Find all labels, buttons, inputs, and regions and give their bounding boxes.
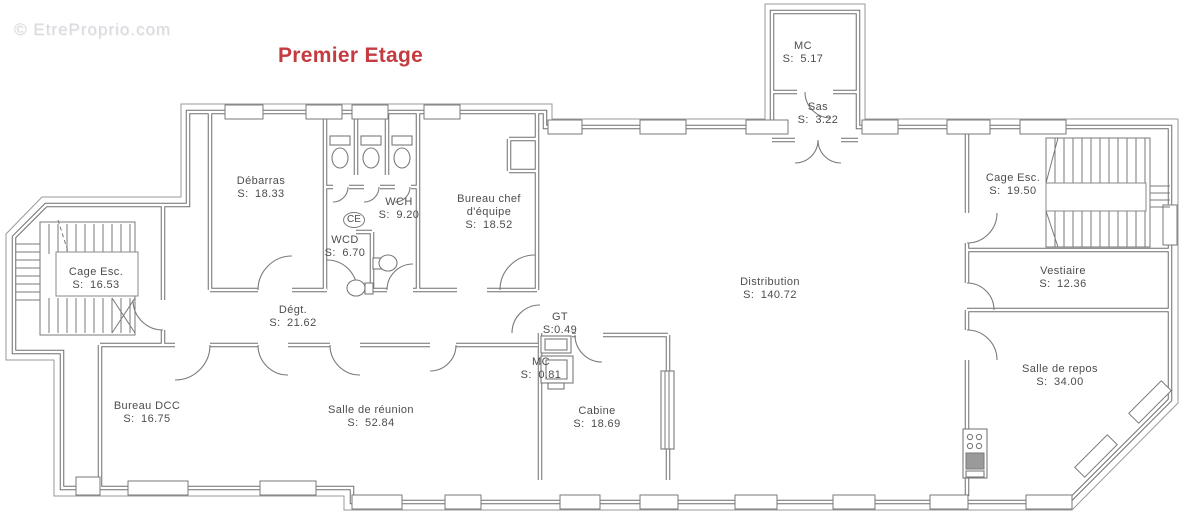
room-label-degagement: Dégt. S: 21.62 bbox=[269, 304, 316, 330]
room-area: S: 0.81 bbox=[521, 369, 562, 382]
room-label-bureau-chef: Bureau chef d'équipe S: 18.52 bbox=[446, 193, 532, 232]
room-area: S: 18.33 bbox=[237, 188, 284, 201]
room-area: S: 18.69 bbox=[573, 418, 620, 431]
room-name: Cage Esc. bbox=[69, 266, 123, 279]
room-name: Débarras bbox=[237, 175, 285, 188]
room-label-sas: Sas S: 3.22 bbox=[798, 101, 839, 127]
room-area: S: 19.50 bbox=[989, 185, 1036, 198]
room-label-salle-reunion: Salle de réunion S: 52.84 bbox=[328, 404, 414, 430]
room-label-distribution: Distribution S: 140.72 bbox=[740, 276, 800, 302]
room-area: S: 16.53 bbox=[72, 279, 119, 292]
room-label-vestiaire: Vestiaire S: 12.36 bbox=[1039, 265, 1086, 291]
room-label-bureau-dcc: Bureau DCC S: 16.75 bbox=[114, 400, 180, 426]
room-area: S: 5.17 bbox=[783, 53, 824, 66]
floor-plan-drawing bbox=[0, 0, 1200, 522]
room-area: S: 34.00 bbox=[1036, 376, 1083, 389]
room-area: S: 18.52 bbox=[465, 219, 512, 232]
room-label-salle-repos: Salle de repos S: 34.00 bbox=[1022, 363, 1098, 389]
room-name: Cage Esc. bbox=[986, 172, 1040, 185]
room-label-wcd: WCD S: 6.70 bbox=[325, 234, 366, 260]
room-label-gt: GT S:0.49 bbox=[543, 311, 577, 337]
room-name: Salle de repos bbox=[1022, 363, 1098, 376]
room-area: S: 3.22 bbox=[798, 114, 839, 127]
room-area: S: 52.84 bbox=[347, 417, 394, 430]
room-name: WCH bbox=[385, 196, 412, 209]
room-name: Dégt. bbox=[279, 304, 307, 317]
room-area: S:0.49 bbox=[543, 324, 577, 337]
room-name: Salle de réunion bbox=[328, 404, 414, 417]
outer-offset-outline bbox=[6, 4, 1178, 510]
room-name: Bureau chef d'équipe bbox=[446, 193, 532, 219]
room-label-cage-esc-droite: Cage Esc. S: 19.50 bbox=[986, 172, 1040, 198]
room-label-cabine: Cabine S: 18.69 bbox=[573, 405, 620, 431]
room-name: Cabine bbox=[578, 405, 615, 418]
room-area: S: 9.20 bbox=[379, 209, 420, 222]
room-label-ce: CE bbox=[343, 212, 365, 228]
room-label-cage-esc-gauche: Cage Esc. S: 16.53 bbox=[69, 266, 123, 292]
room-name: MC bbox=[532, 356, 550, 369]
staircase-right-icon bbox=[1046, 138, 1170, 247]
floor-plan: © EtreProprio.com Premier Etage MC S: 5.… bbox=[0, 0, 1200, 522]
room-name: WCD bbox=[331, 234, 358, 247]
watermark: © EtreProprio.com bbox=[14, 20, 171, 40]
room-area: S: 16.75 bbox=[123, 413, 170, 426]
room-name: Distribution bbox=[740, 276, 800, 289]
room-area: S: 6.70 bbox=[325, 247, 366, 260]
room-area: S: 12.36 bbox=[1039, 278, 1086, 291]
page-title: Premier Etage bbox=[278, 44, 423, 68]
kitchenette-icon bbox=[963, 429, 987, 478]
room-area: S: 21.62 bbox=[269, 317, 316, 330]
room-label-mc-petit: MC S: 0.81 bbox=[521, 356, 562, 382]
room-label-debarras: Débarras S: 18.33 bbox=[237, 175, 285, 201]
room-name: GT bbox=[552, 311, 568, 324]
room-name: Sas bbox=[808, 101, 828, 114]
window-icons bbox=[76, 105, 1177, 509]
room-name: Vestiaire bbox=[1040, 265, 1086, 278]
room-label-wch: WCH S: 9.20 bbox=[379, 196, 420, 222]
glazed-partition-icon bbox=[661, 371, 674, 449]
gt-closet-icon bbox=[541, 336, 571, 353]
room-name: MC bbox=[794, 40, 812, 53]
room-name: Bureau DCC bbox=[114, 400, 180, 413]
room-label-mc-top: MC S: 5.17 bbox=[783, 40, 824, 66]
room-area: S: 140.72 bbox=[743, 289, 797, 302]
